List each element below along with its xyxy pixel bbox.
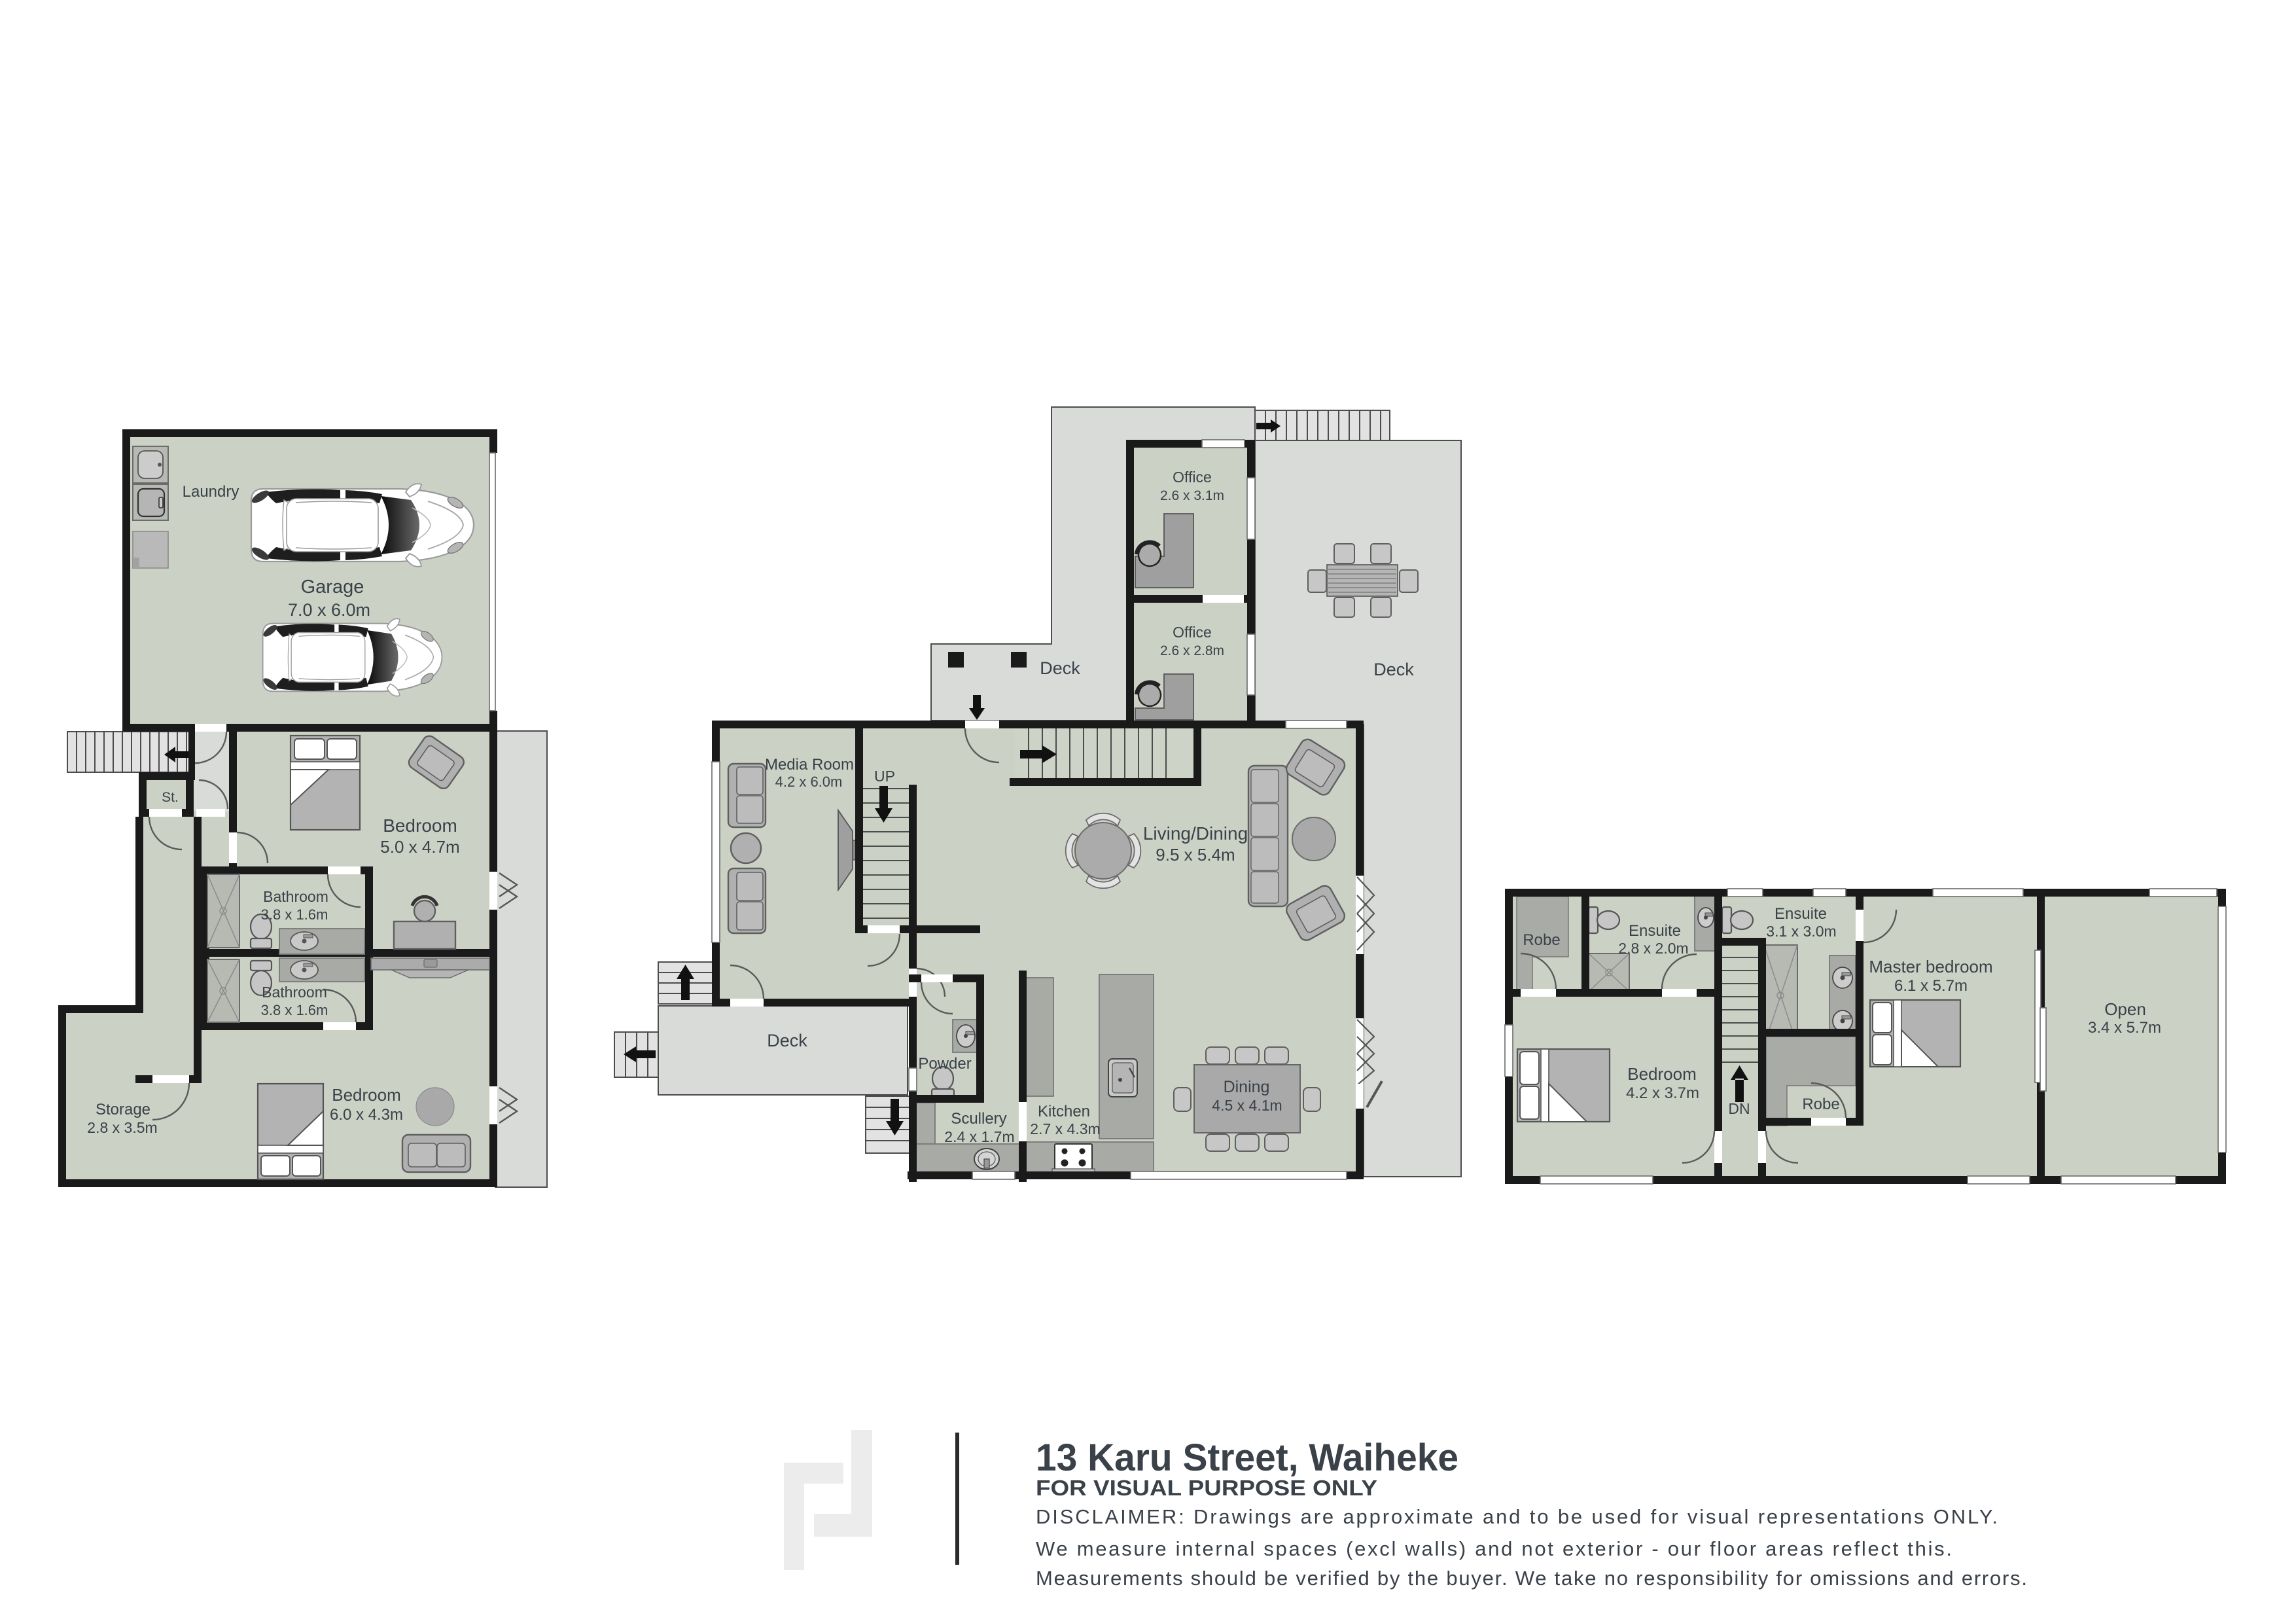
svg-text:4.2 x 6.0m: 4.2 x 6.0m: [775, 774, 843, 790]
svg-text:Bedroom: Bedroom: [383, 815, 457, 836]
svg-text:6.1 x 5.7m: 6.1 x 5.7m: [1894, 977, 1968, 995]
svg-text:FOR VISUAL PURPOSE ONLY: FOR VISUAL PURPOSE ONLY: [1036, 1476, 1377, 1500]
svg-text:5.0 x 4.7m: 5.0 x 4.7m: [380, 837, 459, 857]
svg-text:DISCLAIMER: Drawings are appr: DISCLAIMER: Drawings are approximate and…: [1036, 1505, 1998, 1528]
svg-text:Master bedroom: Master bedroom: [1869, 957, 1992, 976]
svg-text:Bedroom: Bedroom: [1627, 1064, 1697, 1084]
svg-text:Storage: Storage: [96, 1101, 150, 1118]
svg-text:We measure internal spaces (ex: We measure internal spaces (excl walls) …: [1036, 1537, 1952, 1560]
svg-text:7.0 x 6.0m: 7.0 x 6.0m: [288, 600, 370, 620]
svg-text:Scullery: Scullery: [951, 1110, 1006, 1128]
svg-text:4.2 x 3.7m: 4.2 x 3.7m: [1626, 1084, 1699, 1102]
svg-text:Ensuite: Ensuite: [1775, 905, 1827, 923]
svg-text:2.7 x 4.3m: 2.7 x 4.3m: [1030, 1120, 1100, 1137]
svg-text:3.8 x 1.6m: 3.8 x 1.6m: [261, 906, 328, 923]
svg-text:Bathroom: Bathroom: [263, 888, 328, 905]
svg-text:Deck: Deck: [1373, 660, 1414, 679]
svg-text:Deck: Deck: [1040, 658, 1080, 678]
svg-text:Bathroom: Bathroom: [262, 984, 327, 1001]
svg-text:Measurements should be verifie: Measurements should be verified by the b…: [1036, 1567, 2027, 1590]
svg-text:UP: UP: [874, 768, 895, 785]
svg-text:Open: Open: [2104, 999, 2146, 1019]
svg-text:Powder: Powder: [918, 1055, 971, 1073]
svg-text:Ensuite: Ensuite: [1629, 922, 1681, 940]
svg-text:6.0 x 4.3m: 6.0 x 4.3m: [330, 1106, 403, 1124]
svg-text:Bedroom: Bedroom: [332, 1085, 401, 1105]
svg-text:Robe: Robe: [1802, 1096, 1839, 1113]
svg-text:4.5 x 4.1m: 4.5 x 4.1m: [1212, 1097, 1282, 1114]
svg-text:Office: Office: [1173, 469, 1212, 486]
svg-text:St.: St.: [162, 790, 179, 805]
svg-text:Kitchen: Kitchen: [1038, 1103, 1090, 1120]
svg-text:Robe: Robe: [1523, 931, 1560, 949]
svg-text:3.4 x 5.7m: 3.4 x 5.7m: [2088, 1019, 2161, 1037]
svg-text:2.6 x 3.1m: 2.6 x 3.1m: [1160, 488, 1224, 503]
svg-text:DN: DN: [1728, 1100, 1750, 1117]
svg-text:9.5 x 5.4m: 9.5 x 5.4m: [1156, 845, 1235, 865]
svg-text:2.8 x 3.5m: 2.8 x 3.5m: [87, 1119, 157, 1136]
svg-text:Garage: Garage: [301, 577, 364, 597]
svg-text:2.6 x 2.8m: 2.6 x 2.8m: [1160, 643, 1224, 658]
svg-text:Office: Office: [1173, 624, 1212, 641]
svg-text:Media Room: Media Room: [765, 756, 854, 774]
svg-text:13 Karu Street, Waiheke: 13 Karu Street, Waiheke: [1036, 1436, 1458, 1479]
svg-text:3.1 x 3.0m: 3.1 x 3.0m: [1766, 923, 1836, 940]
svg-text:Deck: Deck: [767, 1031, 807, 1050]
svg-text:Laundry: Laundry: [183, 483, 239, 501]
svg-text:Living/Dining: Living/Dining: [1143, 823, 1248, 844]
svg-text:2.4 x 1.7m: 2.4 x 1.7m: [944, 1128, 1014, 1145]
svg-text:2.8 x 2.0m: 2.8 x 2.0m: [1618, 940, 1688, 957]
svg-text:3.8 x 1.6m: 3.8 x 1.6m: [261, 1002, 328, 1018]
svg-text:Dining: Dining: [1224, 1078, 1270, 1096]
